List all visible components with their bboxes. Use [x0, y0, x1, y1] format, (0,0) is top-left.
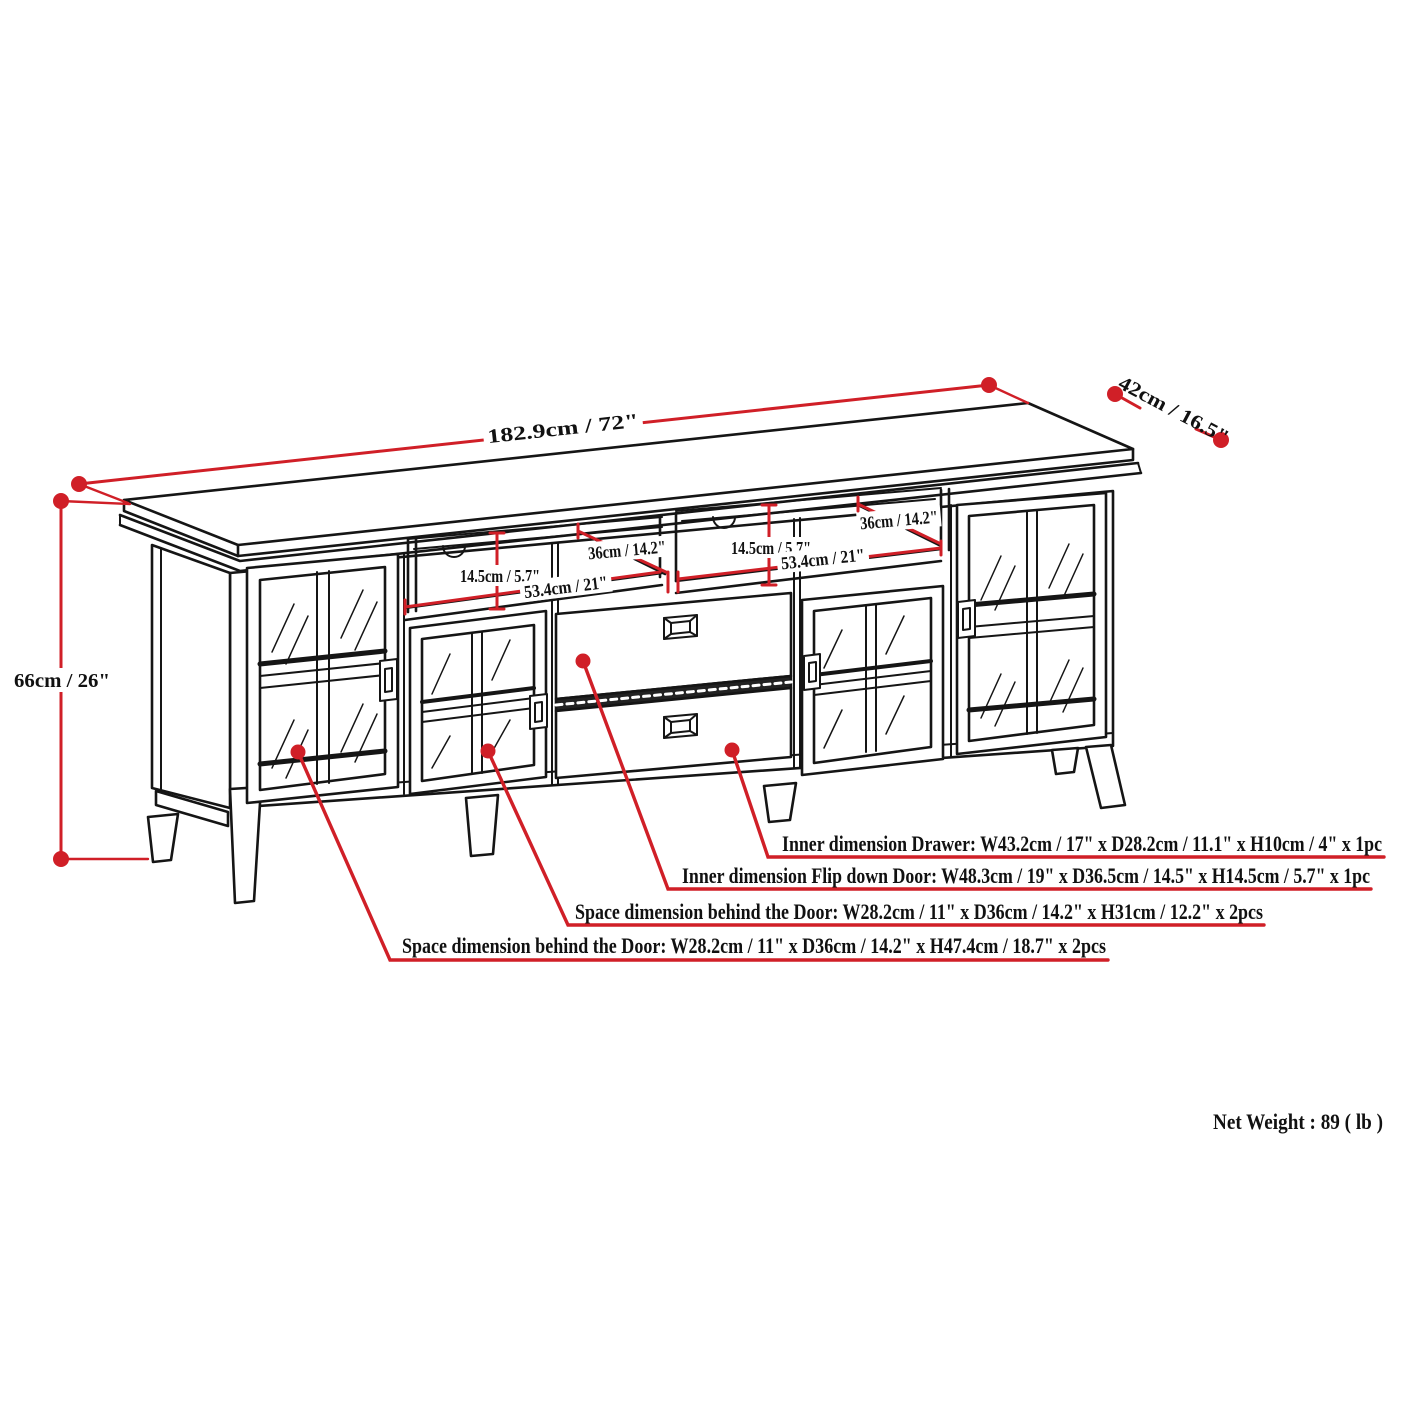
left-small-glass-door — [410, 611, 547, 794]
annotation-drawer: Inner dimension Drawer: W43.2cm / 17" x … — [782, 831, 1382, 856]
drawer-handle-top — [664, 615, 697, 639]
right-tall-glass-door — [957, 493, 1106, 754]
net-weight-label: Net Weight : 89 ( lb ) — [1213, 1109, 1383, 1134]
annotation-space-behind-small-door: Space dimension behind the Door: W28.2cm… — [575, 899, 1263, 924]
technical-drawing-page: 182.9cm / 72" 42cm / 16.5" 66cm / 26" 14… — [0, 0, 1426, 1426]
right-small-glass-door — [802, 586, 943, 775]
annotation-space-behind-tall-door: Space dimension behind the Door: W28.2cm… — [402, 933, 1106, 958]
door-handle — [804, 654, 820, 690]
annotation-flip-down-door: Inner dimension Flip down Door: W48.3cm … — [682, 863, 1370, 888]
left-tall-glass-door — [247, 554, 398, 803]
door-handle — [958, 600, 975, 638]
drawer-handle-bottom — [664, 714, 697, 738]
depth-dimension-label: 42cm / 16.5" — [1115, 372, 1233, 449]
tv-stand-dimension-diagram: 182.9cm / 72" 42cm / 16.5" 66cm / 26" 14… — [0, 0, 1426, 1426]
annotation-texts: Inner dimension Drawer: W43.2cm / 17" x … — [402, 831, 1382, 958]
door-handle — [380, 659, 397, 701]
tv-stand-line-art — [120, 403, 1141, 903]
door-handle — [530, 694, 547, 729]
height-dimension-label: 66cm / 26" — [14, 670, 110, 692]
